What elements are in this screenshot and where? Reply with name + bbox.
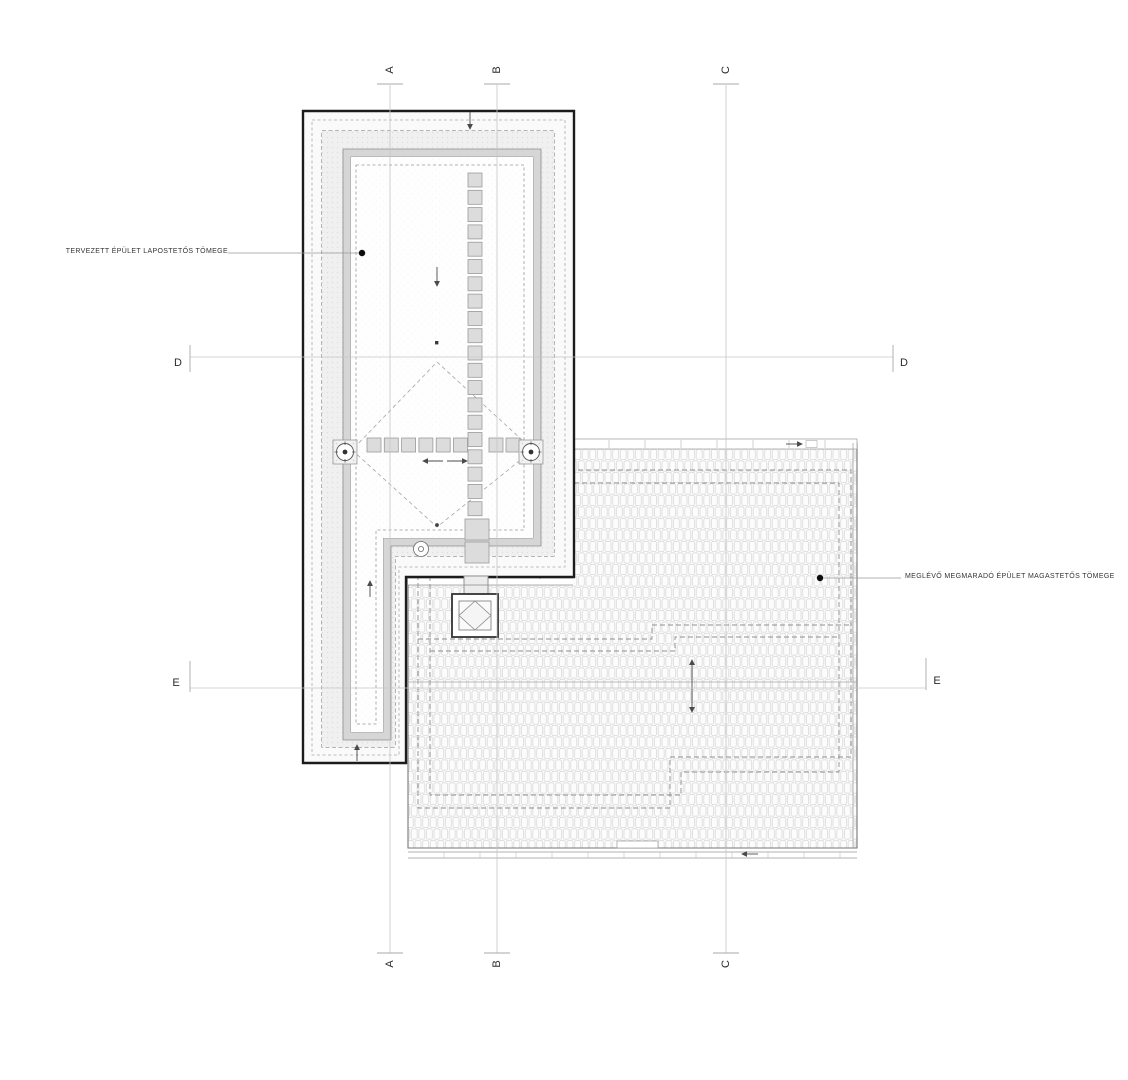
roof-plan-page: { "annotations": { "flat_roof_label": "T… [0,0,1128,1080]
section-marker-d-left: D [170,355,186,371]
roof-plan-svg [0,0,1128,1080]
section-marker-c-bottom: C [718,956,734,972]
roof-drain-left [333,440,357,464]
slope-high-point-bottom [435,523,439,527]
section-marker-a-bottom: A [382,956,398,972]
section-marker-a-top: A [382,62,398,78]
section-marker-c-top: C [718,62,734,78]
flat-roof-annotation: TERVEZETT ÉPÜLET LAPOSTETŐS TÖMEGE [58,248,228,255]
section-marker-e-left: E [168,675,184,691]
slope-high-point-top [435,341,438,344]
section-marker-b-top: B [489,62,505,78]
flat-roof-leader-dot [359,250,365,256]
section-marker-e-right: E [929,673,945,689]
ridge-cap-strip-top [573,439,857,449]
section-marker-b-bottom: B [489,956,505,972]
roof-drain-small [414,542,429,557]
pitched-roof-annotation: MEGLÉVŐ MEGMARADÓ ÉPÜLET MAGASTETŐS TÖME… [905,573,1115,580]
roof-drain-right [519,440,543,464]
section-marker-d-right: D [896,355,912,371]
